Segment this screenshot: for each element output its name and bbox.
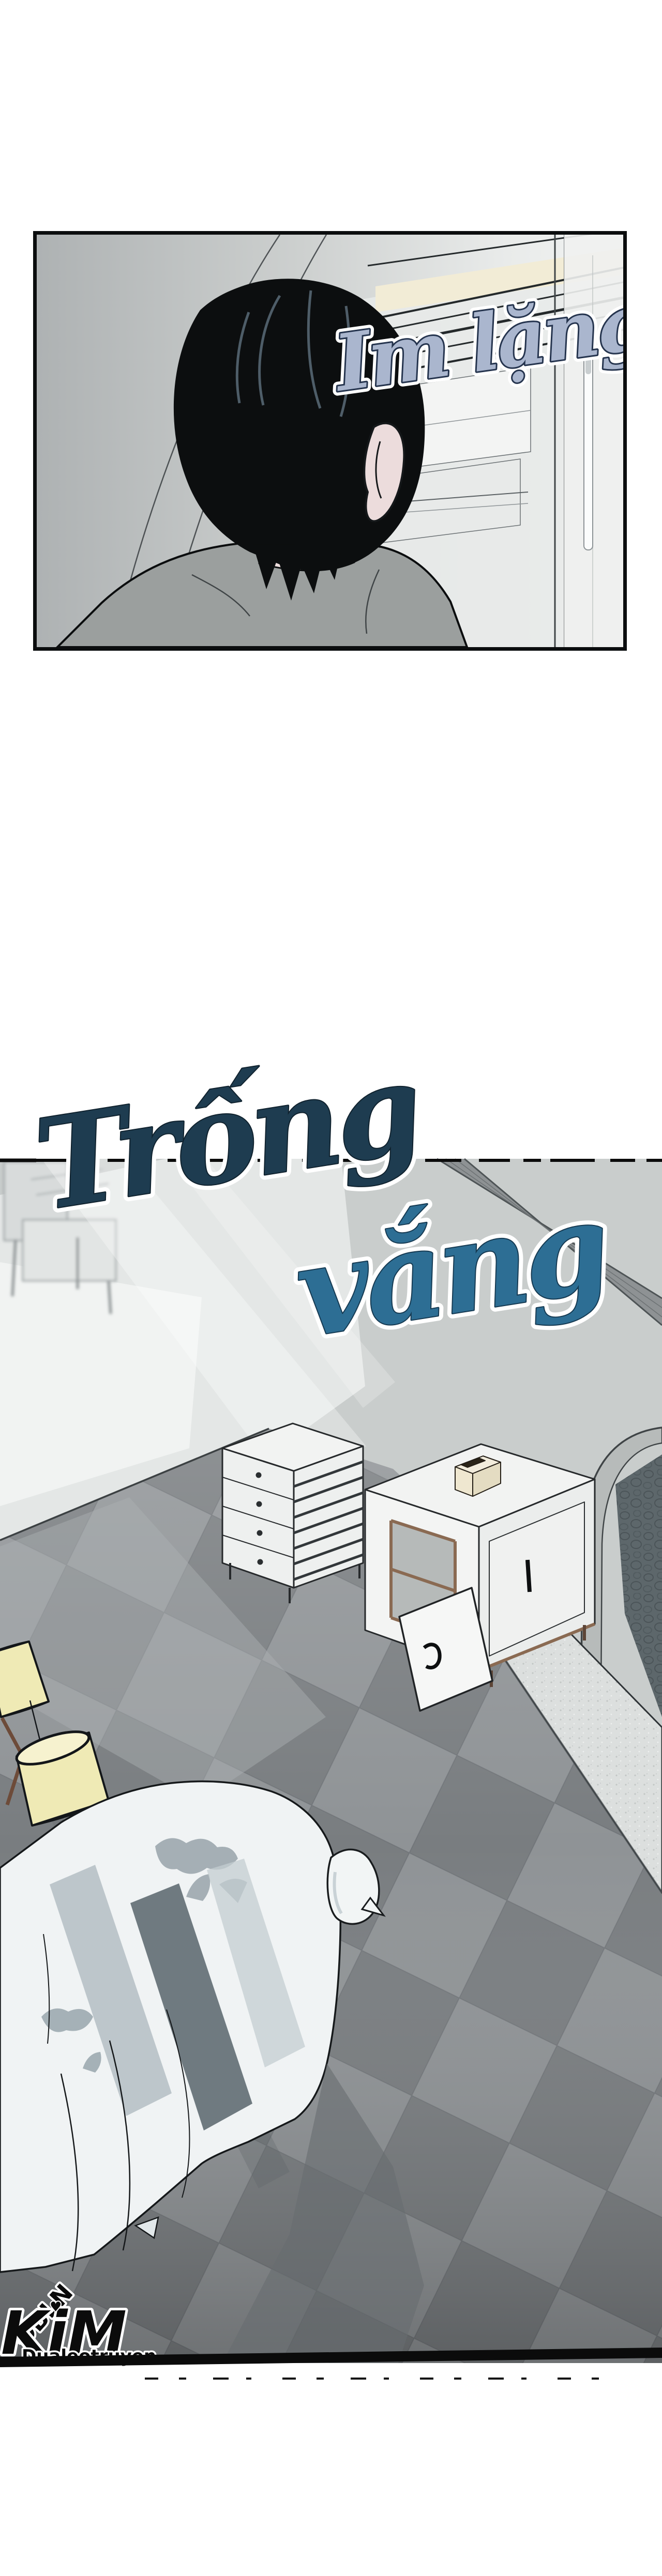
panel-artwork: Im lặng Im lặng	[37, 235, 623, 647]
door-handle	[584, 352, 593, 550]
watermark-heart-icon: ♥	[50, 2299, 62, 2315]
bedroom-scene: ĐBLN KiM ♥ Dualeotruyen Trống Trống	[0, 1044, 662, 2388]
comic-panel-silence: Im lặng Im lặng	[33, 231, 627, 651]
comic-page: Im lặng Im lặng	[0, 0, 662, 2576]
bedroom-artwork: ĐBLN KiM ♥ Dualeotruyen Trống Trống	[0, 1044, 662, 2388]
door-handle-right	[528, 1560, 530, 1592]
